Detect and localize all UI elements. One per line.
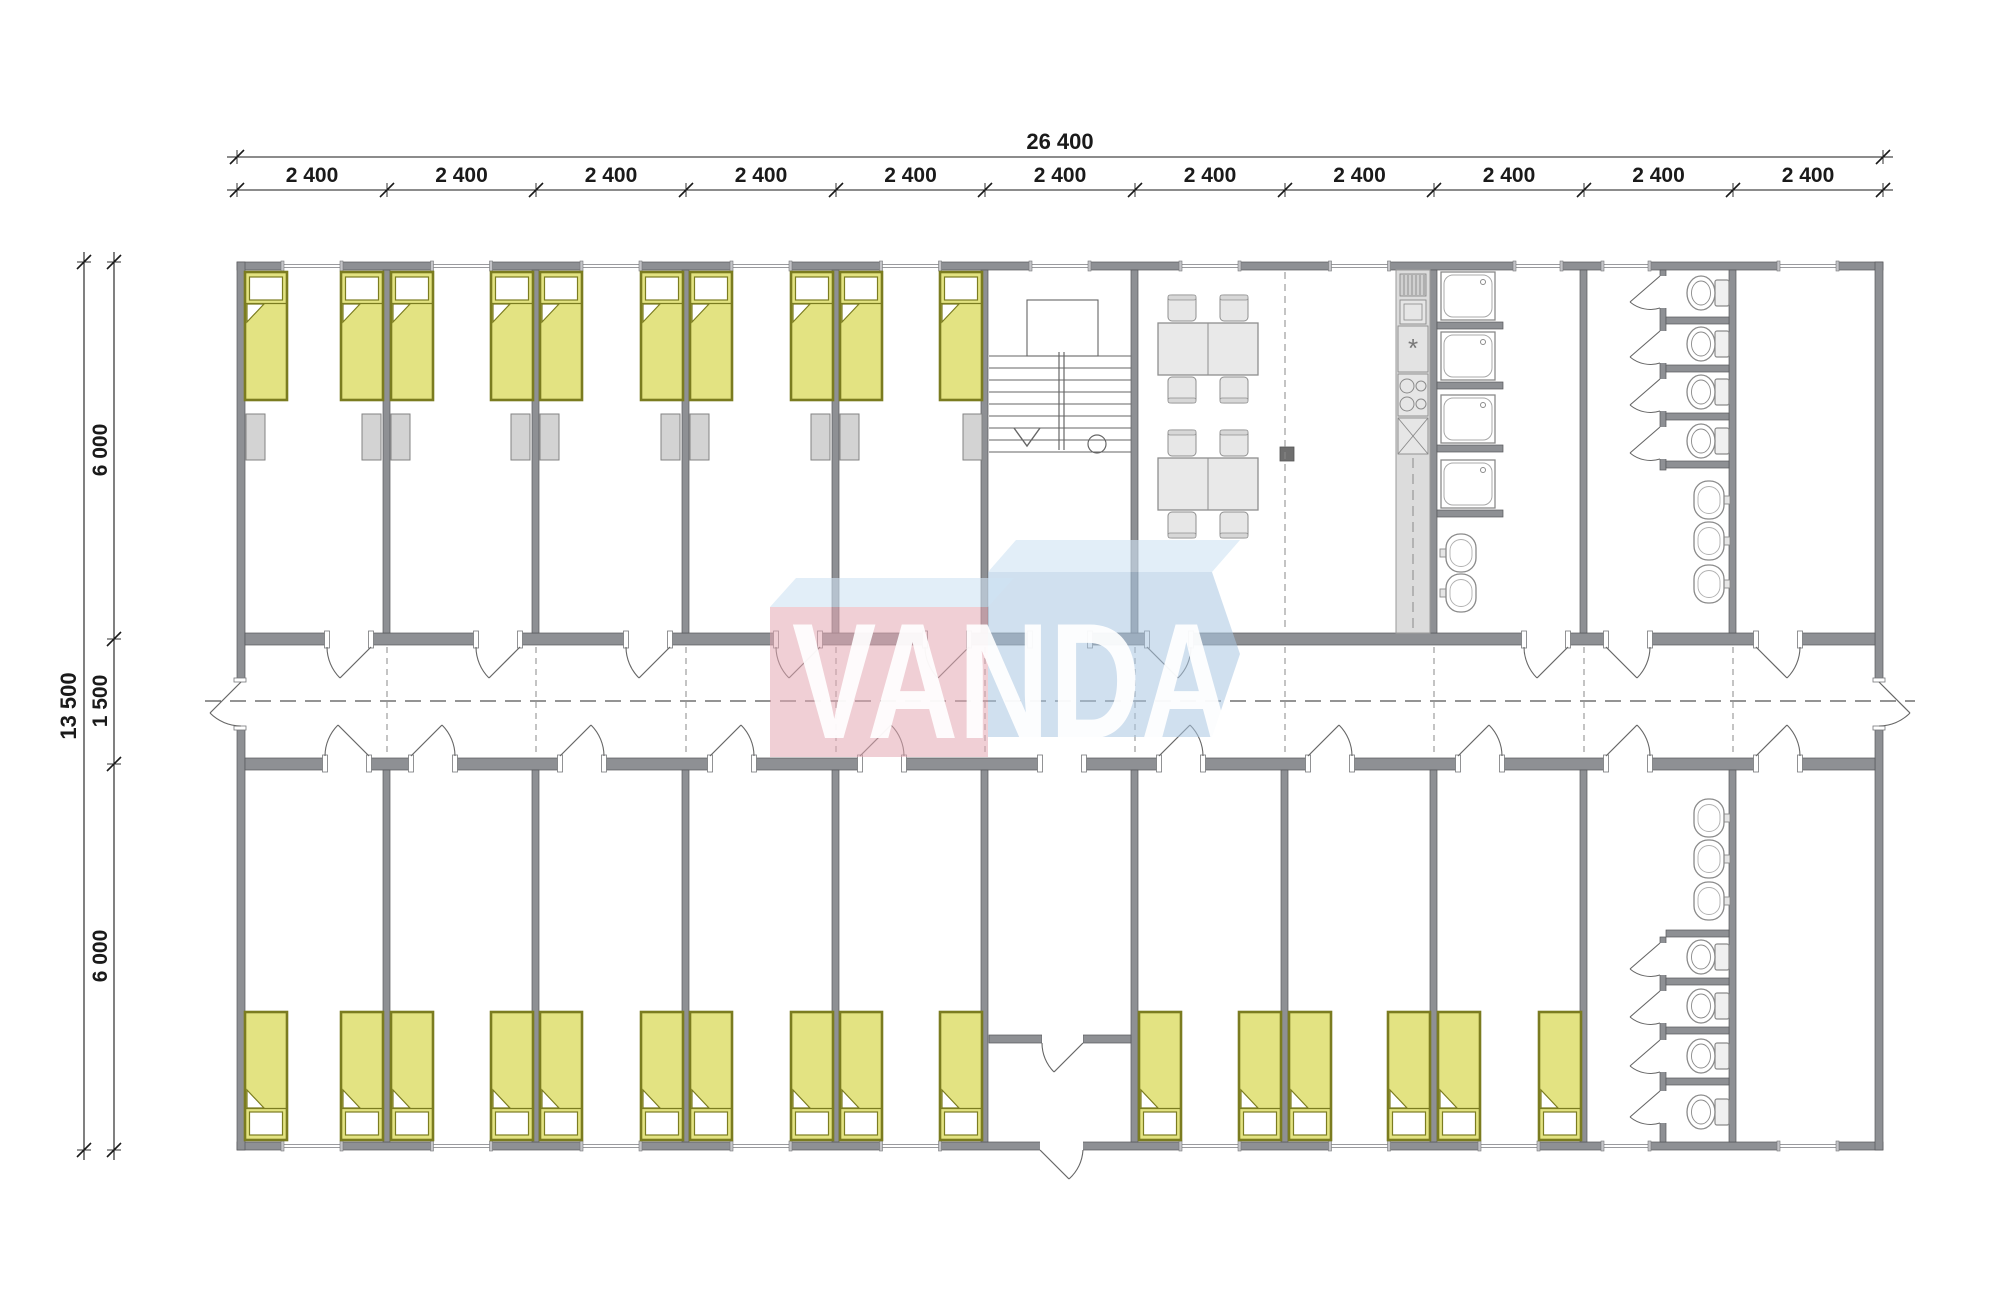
stall-door xyxy=(1630,276,1669,309)
bed xyxy=(245,272,287,400)
room-door xyxy=(409,725,458,772)
shower-tray-icon xyxy=(1441,272,1495,320)
bed xyxy=(1139,1012,1181,1140)
dimension-label: 13 500 xyxy=(56,672,81,739)
chair xyxy=(1168,430,1196,456)
bed xyxy=(840,1012,882,1140)
bed xyxy=(940,1012,982,1140)
dimension-label: 2 400 xyxy=(1333,164,1386,187)
washbasin-icon xyxy=(1440,574,1476,612)
floor-plan-drawing: *VANDA26 4002 4002 4002 4002 4002 4002 4… xyxy=(0,0,2000,1312)
stall-door xyxy=(1630,1091,1669,1124)
washbasin-icon xyxy=(1694,522,1730,560)
stall-door xyxy=(1630,379,1669,412)
bed xyxy=(791,1012,833,1140)
room-door xyxy=(323,725,372,772)
stall-door xyxy=(1630,943,1669,976)
bed xyxy=(341,1012,383,1140)
room-door xyxy=(624,631,673,678)
bed xyxy=(491,272,533,400)
main-entrance-door xyxy=(1040,1140,1083,1179)
washbasin-icon xyxy=(1694,799,1730,837)
toilet-icon xyxy=(1687,1095,1729,1129)
dimension-label: 2 400 xyxy=(1034,164,1087,187)
washbasin-icon xyxy=(1694,840,1730,878)
room-door xyxy=(558,725,607,772)
toilet-icon xyxy=(1687,424,1729,458)
room-door xyxy=(325,631,374,678)
dimension-label: 2 400 xyxy=(1483,164,1536,187)
chair xyxy=(1220,430,1248,456)
chair xyxy=(1168,377,1196,403)
room-door xyxy=(1522,631,1571,678)
kitchen-counter: * xyxy=(1396,270,1430,633)
toilet-icon xyxy=(1687,989,1729,1023)
room-door xyxy=(1306,725,1355,772)
chair xyxy=(1220,512,1248,538)
dimension-label: 26 400 xyxy=(1026,129,1093,154)
room-door xyxy=(1754,725,1803,772)
shower-tray-icon xyxy=(1441,395,1495,443)
dining-area xyxy=(1158,295,1294,538)
dimension-label: 2 400 xyxy=(735,164,788,187)
toilet-icon xyxy=(1687,1039,1729,1073)
bed xyxy=(391,272,433,400)
bed xyxy=(690,1012,732,1140)
bed xyxy=(245,1012,287,1140)
stove-symbol: * xyxy=(1408,333,1418,363)
stall-door xyxy=(1630,331,1669,364)
washbasin-icon xyxy=(1694,882,1730,920)
stall-door xyxy=(1630,427,1669,460)
shower-tray-icon xyxy=(1441,332,1495,380)
bed xyxy=(940,272,982,400)
room-door xyxy=(1604,631,1653,678)
bed xyxy=(1438,1012,1480,1140)
room-door xyxy=(474,631,523,678)
bed xyxy=(1239,1012,1281,1140)
dimension-label: 2 400 xyxy=(1184,164,1237,187)
bed xyxy=(641,1012,683,1140)
room-door xyxy=(1754,631,1803,678)
chair xyxy=(1220,377,1248,403)
toilet-icon xyxy=(1687,276,1729,310)
toilet-icon xyxy=(1687,940,1729,974)
bed xyxy=(391,1012,433,1140)
bed xyxy=(491,1012,533,1140)
shower-tray-icon xyxy=(1441,460,1495,508)
washbasin-icon xyxy=(1694,481,1730,519)
dimension-label: 2 400 xyxy=(585,164,638,187)
bed xyxy=(1388,1012,1430,1140)
chair xyxy=(1220,295,1248,321)
stall-door xyxy=(1630,991,1669,1024)
bed xyxy=(540,272,582,400)
floor-plan-canvas: *VANDA26 4002 4002 4002 4002 4002 4002 4… xyxy=(0,0,2000,1312)
dimension-label: 2 400 xyxy=(286,164,339,187)
bed xyxy=(840,272,882,400)
chair xyxy=(1168,295,1196,321)
bed xyxy=(540,1012,582,1140)
watermark: VANDA xyxy=(770,540,1240,773)
vestibule-door xyxy=(1042,1033,1083,1072)
chair xyxy=(1168,512,1196,538)
dimension-label: 2 400 xyxy=(1782,164,1835,187)
dimension-label: 2 400 xyxy=(435,164,488,187)
dimension-label: 1 500 xyxy=(89,675,112,728)
dimension-label: 6 000 xyxy=(89,424,112,477)
dimension-label: 2 400 xyxy=(1632,164,1685,187)
bed xyxy=(1289,1012,1331,1140)
dimension-label: 6 000 xyxy=(89,930,112,983)
entrance-door-left xyxy=(210,678,246,730)
room-door xyxy=(1456,725,1505,772)
watermark-text: VANDA xyxy=(792,589,1232,773)
dimension-label: 2 400 xyxy=(884,164,937,187)
bed xyxy=(341,272,383,400)
bed xyxy=(791,272,833,400)
bed xyxy=(690,272,732,400)
bed xyxy=(1539,1012,1581,1140)
washbasin-icon xyxy=(1694,565,1730,603)
room-door xyxy=(1604,725,1653,772)
room-door xyxy=(708,725,757,772)
stall-door xyxy=(1630,1040,1669,1073)
toilet-icon xyxy=(1687,327,1729,361)
washbasin-icon xyxy=(1440,534,1476,572)
staircase xyxy=(989,300,1131,453)
entrance-door-right xyxy=(1873,678,1910,730)
lockers xyxy=(246,414,982,460)
toilet-icon xyxy=(1687,375,1729,409)
bed xyxy=(641,272,683,400)
